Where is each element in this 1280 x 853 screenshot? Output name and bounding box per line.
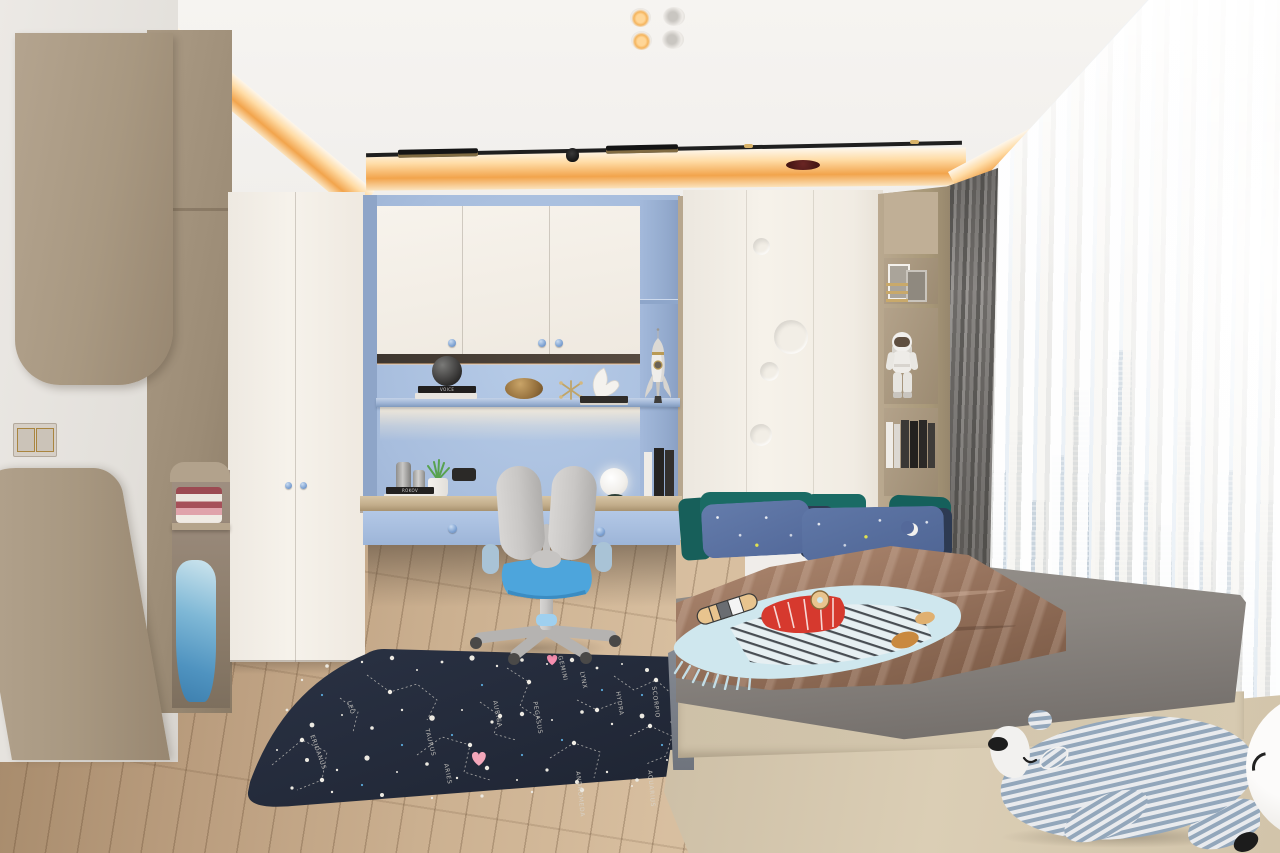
- book-spine: [919, 420, 927, 468]
- hanging-garment: [176, 560, 216, 702]
- book-spine: [928, 423, 935, 468]
- illustrated-throw-blanket: [670, 578, 970, 690]
- book-spine: [910, 421, 918, 468]
- track-light-bar: [606, 144, 678, 154]
- kids-desk-chair: [446, 462, 651, 667]
- book-row: [886, 420, 938, 468]
- book-stack-desk: ROKOV: [386, 487, 434, 494]
- cabinet-seam: [549, 206, 550, 354]
- smoke-detector-icon: [786, 160, 820, 170]
- circle-recess: [774, 320, 808, 354]
- wardrobe-big: [683, 190, 883, 520]
- mini-ladder-decor: [886, 282, 908, 302]
- wardrobe-seam: [813, 190, 814, 520]
- alcove-side-panel: [363, 195, 377, 545]
- track-spotlight-icon: [566, 148, 579, 162]
- book-stack-shelf-2: [415, 393, 477, 399]
- downlight-icon: [663, 7, 685, 26]
- shelf-divider: [640, 300, 678, 304]
- folded-clothes: [176, 487, 222, 523]
- woven-sphere-decor: [432, 356, 462, 386]
- picture-frame: [906, 270, 927, 302]
- downlight-icon: [662, 30, 684, 49]
- circle-recess: [760, 362, 779, 381]
- wardrobe-left-seam: [295, 192, 296, 662]
- clothes-niche: [160, 462, 230, 712]
- wood-frame-strip: [678, 196, 683, 518]
- switch-rocker: [36, 428, 54, 452]
- display-shelf: [376, 398, 680, 407]
- book-stack-shelf: VOICE: [418, 386, 476, 393]
- book-spine-text: ROKOV: [402, 488, 418, 493]
- book-spine: [894, 424, 900, 468]
- brass-bowl-decor: [505, 378, 543, 399]
- wardrobe-left: [228, 192, 365, 662]
- switch-rocker: [17, 428, 35, 452]
- frames-cell: [884, 258, 938, 304]
- wardrobe-knob: [285, 482, 292, 489]
- book-spine-text: VOICE: [440, 387, 454, 392]
- rocket-model: [644, 328, 672, 404]
- books-cell: [884, 408, 938, 496]
- niche-arch: [170, 462, 230, 482]
- cabinet-knob: [448, 339, 456, 347]
- light-switch: [13, 423, 57, 457]
- column-door: [884, 192, 938, 254]
- upper-cabinets: [377, 206, 640, 354]
- constellation-rug: [232, 640, 714, 830]
- curved-wood-panel-upper: [15, 33, 173, 385]
- standing-book: [654, 448, 664, 498]
- wardrobe-knob: [300, 482, 307, 489]
- constellation-pillow: [701, 499, 812, 559]
- downlight-icon: [631, 31, 652, 50]
- circle-recess: [753, 238, 770, 255]
- book-slab-under-shell: [580, 396, 628, 403]
- track-led-dot: [910, 140, 919, 144]
- astronaut-figurine: [886, 330, 918, 400]
- downlight-icon: [630, 8, 651, 27]
- bedroom-render: VOICE ROKOV: [0, 0, 1280, 853]
- book-spine: [901, 420, 909, 468]
- plush-bear: [988, 706, 1260, 853]
- shell-sculpture: [588, 364, 622, 400]
- standing-book: [665, 450, 674, 498]
- circle-recess: [750, 424, 772, 446]
- cabinet-knob: [555, 339, 563, 347]
- moon-icon-mask: [901, 521, 914, 534]
- track-light-bar: [398, 148, 478, 158]
- cabinet-knob: [538, 339, 546, 347]
- under-shelf-glow: [380, 407, 676, 441]
- wardrobe-seam: [746, 190, 747, 520]
- book-spine: [886, 422, 893, 468]
- track-led-dot: [744, 144, 753, 148]
- niche-shelf: [172, 523, 230, 530]
- cabinet-seam: [462, 206, 463, 354]
